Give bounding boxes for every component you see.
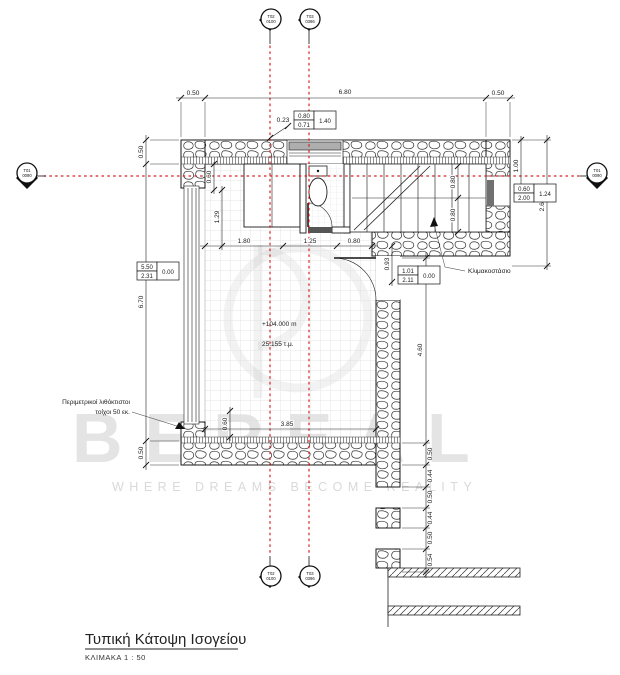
bathroom-wall-bottom [332, 227, 350, 233]
svg-text:1.00: 1.00 [513, 159, 520, 172]
bathroom [300, 164, 350, 233]
svg-text:2.31: 2.31 [141, 274, 153, 280]
svg-text:0.50: 0.50 [492, 90, 505, 97]
grid-marker-bottom-left: Τ02 0100 [259, 556, 281, 588]
svg-text:0.54: 0.54 [427, 553, 434, 566]
toilet-bowl-icon [309, 178, 327, 206]
partitions [244, 164, 300, 227]
grid-marker-left: Τ01 0090 [16, 163, 46, 189]
svg-text:6.70: 6.70 [138, 295, 145, 308]
svg-text:4.60: 4.60 [417, 343, 424, 356]
svg-text:6.80: 6.80 [339, 89, 352, 96]
perimeter-label-2: τοίχοι 50 εκ. [95, 408, 130, 416]
svg-text:2.00: 2.00 [518, 196, 530, 202]
svg-text:0090: 0090 [592, 173, 602, 178]
floor-plan-canvas: BEREAL WHERE DREAMS BECOME REALITY [0, 0, 620, 675]
svg-text:0.23: 0.23 [277, 117, 290, 124]
exterior-step-2 [388, 606, 520, 615]
svg-text:0.00: 0.00 [162, 270, 174, 276]
svg-text:0100: 0100 [266, 576, 276, 581]
floor-plan-sheet: BEREAL WHERE DREAMS BECOME REALITY [0, 0, 620, 675]
level-label: +104.000 m [262, 321, 297, 328]
exterior-steps [388, 568, 520, 627]
title-block: Τυπική Κάτοψη Ισογείου ΚΛΙΜΑΚΑ 1 : 50 [85, 631, 246, 662]
perimeter-label-1: Περιμετρικοί λιθόκτιστοι [62, 398, 130, 406]
svg-text:0.60: 0.60 [222, 417, 229, 430]
tag-side-door: 1.01 2.11 0.00 [398, 266, 440, 284]
dim-top: 0.50 6.80 0.50 [176, 89, 515, 137]
svg-text:3.85: 3.85 [281, 421, 294, 428]
svg-text:0.80: 0.80 [348, 238, 361, 245]
top-window-sash [289, 142, 341, 150]
grid-marker-top-right: Τ03 0396 [298, 9, 320, 44]
tag-left-window: 5.50 2.31 0.00 [137, 262, 179, 280]
wall-bottom [181, 441, 400, 465]
drawing-title: Τυπική Κάτοψη Ισογείου [85, 631, 246, 648]
stairs [350, 164, 486, 232]
grid-marker-right: Τ01 0090 [580, 163, 608, 189]
wall-stair-wing-bottom [372, 232, 510, 256]
svg-text:0.60: 0.60 [206, 170, 213, 183]
tag-right-door: 0.60 2.00 1.24 [514, 184, 556, 202]
wall-bottom-inner-band [181, 437, 400, 443]
wall-column-upper [376, 300, 400, 487]
grid-marker-bottom-right: Τ03 0396 [298, 556, 320, 588]
svg-text:0.80: 0.80 [450, 208, 457, 221]
svg-text:0.80: 0.80 [298, 114, 310, 120]
svg-text:1.01: 1.01 [402, 269, 414, 275]
svg-text:0396: 0396 [305, 19, 315, 24]
svg-text:0.00: 0.00 [423, 274, 435, 280]
right-door-leaf [487, 180, 494, 206]
exterior-step-1 [388, 568, 520, 577]
wall-column-mid [376, 508, 400, 528]
svg-text:1.40: 1.40 [319, 119, 331, 125]
svg-text:0.50: 0.50 [138, 145, 145, 158]
svg-text:0.50: 0.50 [427, 490, 434, 503]
bathroom-wall-right [344, 164, 350, 233]
svg-text:0.93: 0.93 [384, 257, 391, 270]
svg-text:0.50: 0.50 [427, 531, 434, 544]
left-window-opening [184, 186, 199, 424]
bathroom-wall-left [300, 164, 306, 233]
grid-marker-top-left: Τ02 0100 [259, 9, 281, 44]
svg-text:0090: 0090 [22, 173, 32, 178]
svg-text:0.60: 0.60 [518, 187, 530, 193]
svg-text:0100: 0100 [266, 19, 276, 24]
svg-text:5.50: 5.50 [141, 265, 153, 271]
svg-text:0.44: 0.44 [427, 511, 434, 524]
toilet-flush-icon [317, 170, 319, 172]
svg-text:1.24: 1.24 [539, 192, 551, 198]
bathroom-threshold [308, 227, 332, 233]
svg-text:2.11: 2.11 [402, 278, 414, 284]
svg-text:1.80: 1.80 [238, 238, 251, 245]
svg-text:0.50: 0.50 [187, 90, 200, 97]
svg-text:1.25: 1.25 [304, 238, 317, 245]
svg-text:0.44: 0.44 [427, 469, 434, 482]
svg-text:0.50: 0.50 [138, 446, 145, 459]
area-label: 25.155 τ.μ. [262, 341, 294, 348]
svg-text:0.50: 0.50 [427, 447, 434, 460]
svg-text:0.80: 0.80 [450, 175, 457, 188]
wall-column-lower [376, 549, 400, 568]
stairwell-label: Κλιμακοστάσιο [468, 267, 511, 275]
tag-top-window: 0.80 0.71 1.40 [294, 111, 336, 129]
svg-text:1.29: 1.29 [214, 210, 221, 223]
dim-offset: 0.23 [267, 117, 291, 141]
drawing-scale: ΚΛΙΜΑΚΑ 1 : 50 [85, 653, 146, 662]
svg-text:0396: 0396 [305, 576, 315, 581]
svg-text:0.71: 0.71 [298, 123, 310, 129]
dim-right: 1.00 2.60 [512, 135, 551, 270]
